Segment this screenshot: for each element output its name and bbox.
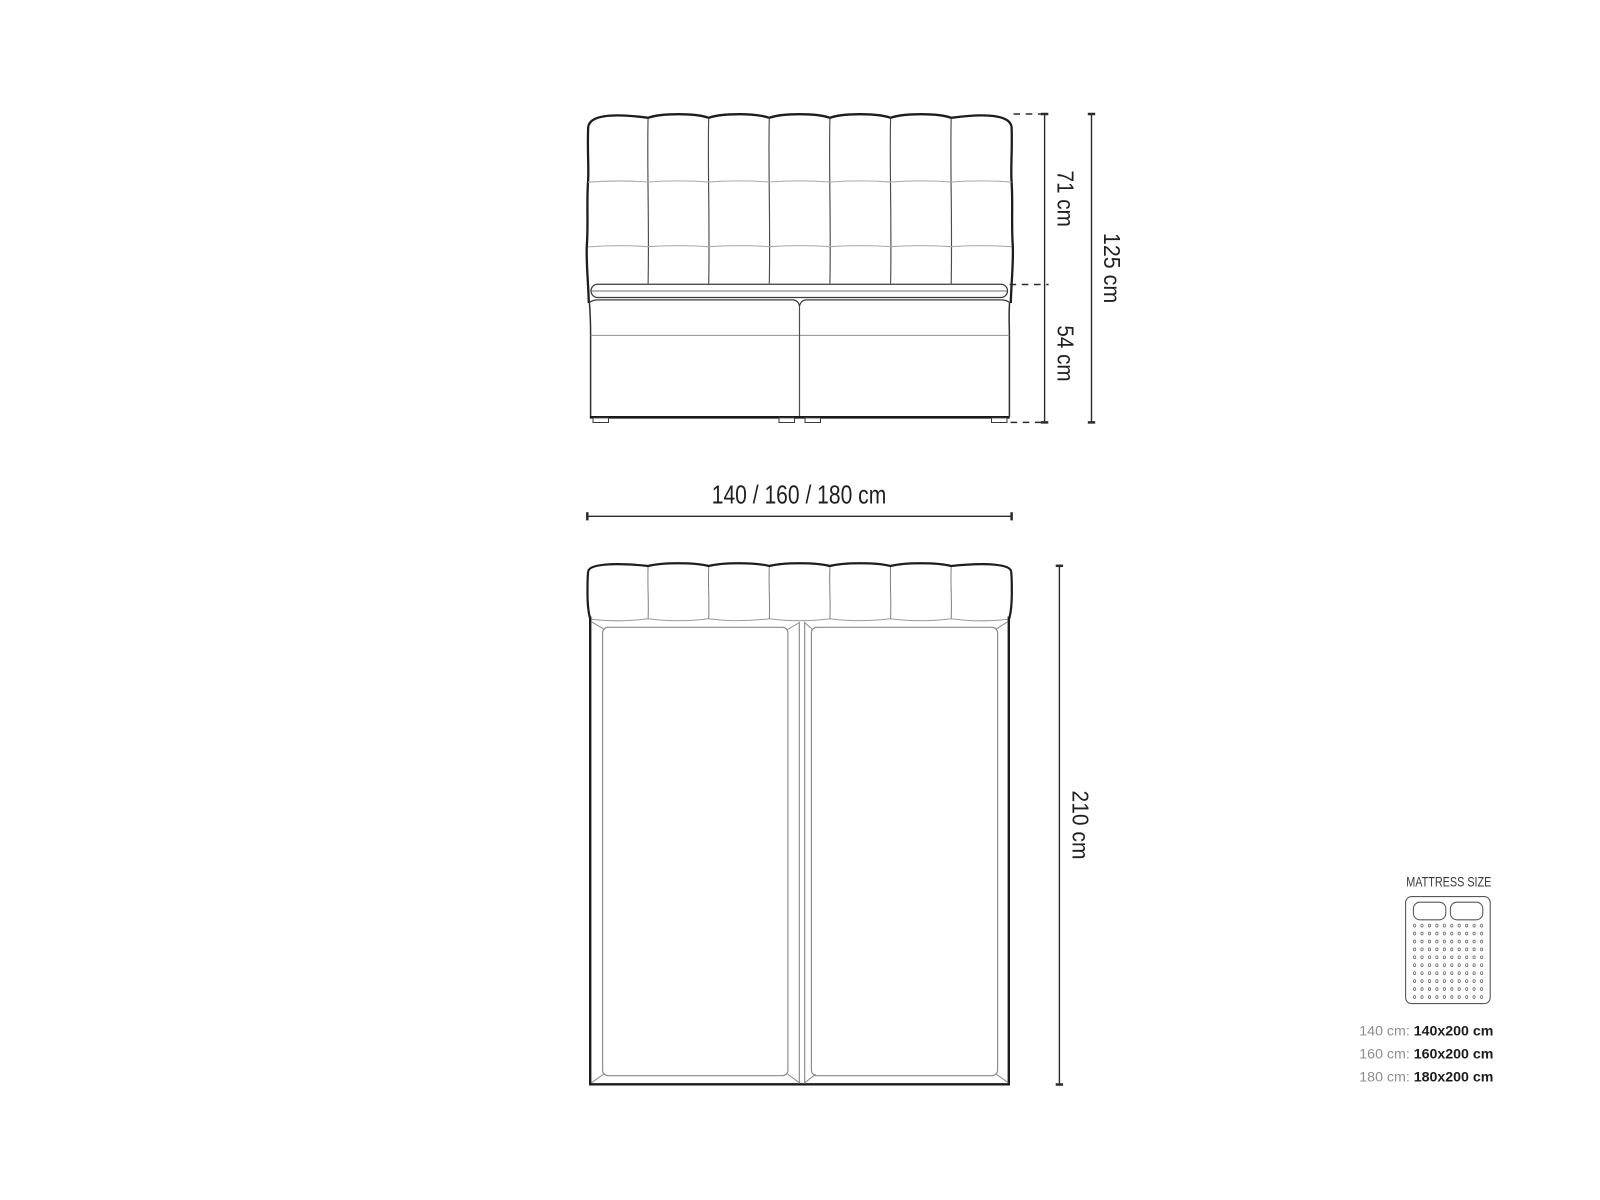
svg-text:125 cm: 125 cm bbox=[1099, 233, 1125, 303]
svg-text:180 cm: 180x200 cm: 180 cm: 180x200 cm bbox=[1359, 1070, 1493, 1086]
svg-text:71 cm: 71 cm bbox=[1052, 171, 1078, 227]
svg-text:140 / 160 / 180 cm: 140 / 160 / 180 cm bbox=[712, 479, 887, 509]
svg-text:MATTRESS SIZE: MATTRESS SIZE bbox=[1406, 874, 1491, 889]
svg-text:210 cm: 210 cm bbox=[1068, 791, 1094, 860]
svg-text:54 cm: 54 cm bbox=[1052, 325, 1078, 381]
svg-text:140 cm: 140x200 cm: 140 cm: 140x200 cm bbox=[1359, 1023, 1493, 1039]
svg-text:160 cm: 160x200 cm: 160 cm: 160x200 cm bbox=[1359, 1047, 1493, 1063]
